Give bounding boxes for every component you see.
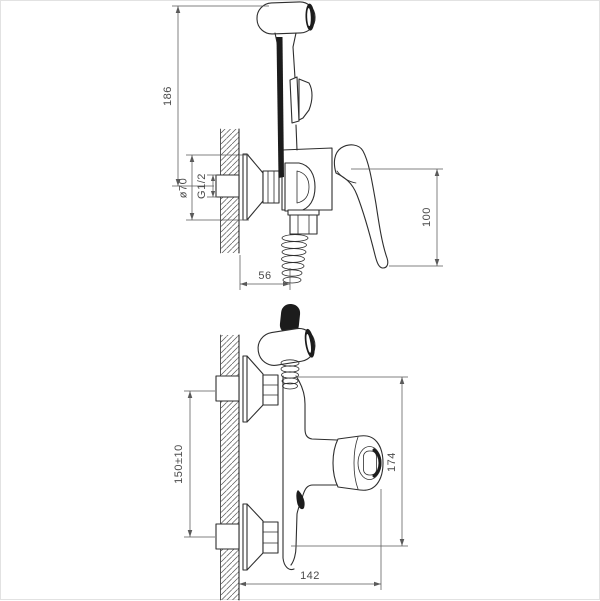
- hose-boss: [285, 163, 315, 211]
- mounting-flange: [243, 154, 263, 220]
- dimension-142: 142: [239, 489, 381, 590]
- bottom-inlet-nipple: [216, 524, 239, 549]
- technical-drawing-canvas: 186 ø70 G1/2 100 56: [0, 0, 600, 600]
- mixer-body-front: [283, 376, 337, 570]
- outlet-collar: [288, 210, 319, 215]
- dim-label-thread: G1/2: [196, 173, 208, 199]
- valve-body: [282, 148, 332, 234]
- dimension-186: 186: [162, 6, 269, 186]
- inlet-nipple: [216, 175, 239, 197]
- top-inlet-nipple: [216, 376, 239, 401]
- side-view: 186 ø70 G1/2 100 56: [162, 1, 443, 290]
- dim-label-inlet-spacing: 150±10: [173, 444, 185, 484]
- dim-label-flange-diameter: ø70: [178, 178, 190, 198]
- outlet-nut: [290, 215, 317, 234]
- front-view: 150±10 174 142: [173, 303, 408, 600]
- shower-hose-coil: [282, 235, 309, 283]
- dim-label-186: 186: [162, 86, 174, 106]
- bottom-inlet-nut: [263, 522, 278, 553]
- wall-section-front: [221, 335, 240, 600]
- dim-label-100: 100: [421, 207, 433, 227]
- lever-knob-front: [333, 436, 383, 491]
- dim-label-174: 174: [386, 452, 398, 472]
- dim-label-142: 142: [300, 570, 320, 582]
- hex-nut: [263, 171, 279, 203]
- dimension-inlet-spacing: 150±10: [173, 391, 215, 537]
- top-inlet-nut: [263, 375, 278, 405]
- faucet-technical-drawing: 186 ø70 G1/2 100 56: [1, 1, 600, 601]
- sprayer-trigger-pad: [299, 79, 312, 120]
- lever-handle: [334, 145, 387, 268]
- sprayer-trigger-arm: [290, 77, 299, 123]
- dim-label-56: 56: [258, 270, 271, 282]
- sprayer-hose-front: [277, 37, 285, 178]
